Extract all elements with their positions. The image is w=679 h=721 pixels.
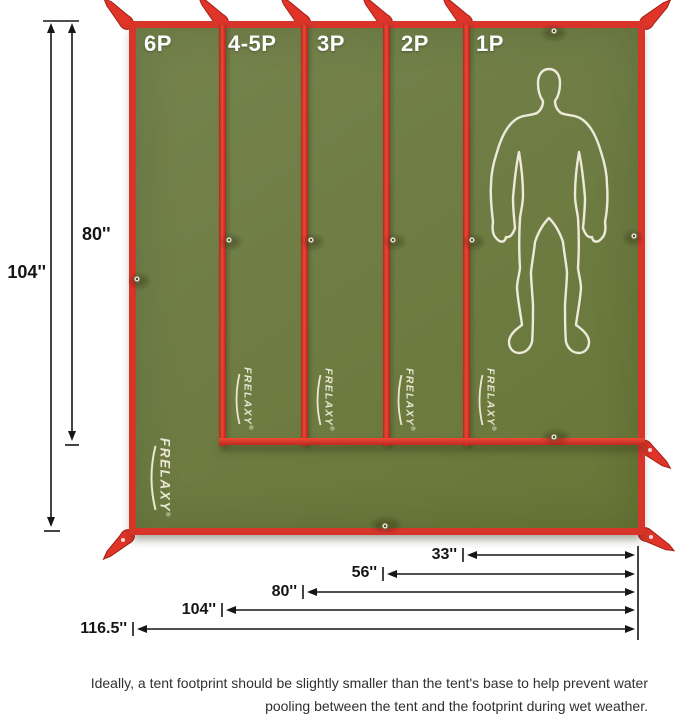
brand-swoosh-icon [235,372,241,426]
brand-name: FRELAXY [404,368,416,426]
registered-mark: ® [490,426,496,432]
brand-logo: FRELAXY® [316,368,335,432]
small-panels-bottom-seam [219,438,645,445]
dim-width-104: 104'' [136,601,216,619]
brand-swoosh-icon [150,444,157,512]
dim-height-80: 80'' [82,224,111,245]
panel-seam-2p [383,25,390,446]
product-diagram: 6P 4-5P 3P 2P 1P FRELAXY® FRELAXY® FRELA… [0,0,679,721]
brand-logo: FRELAXY® [478,368,497,432]
brand-swoosh-icon [316,373,322,427]
panel-seam-3p [301,25,308,446]
registered-mark: ® [328,426,334,432]
brand-name: FRELAXY [158,438,173,512]
panel-label-4-5p: 4-5P [228,31,276,57]
dim-width-116-5: 116.5'' [37,620,127,638]
brand-name: FRELAXY [485,368,497,426]
caption-line-2: pooling between the tent and the footpri… [20,695,648,718]
panel-label-6p: 6P [144,31,172,57]
brand-logo: FRELAXY® [397,368,416,432]
dim-width-80: 80'' [217,583,297,601]
registered-mark: ® [247,425,253,431]
panel-label-2p: 2P [401,31,429,57]
brand-name: FRELAXY [323,368,335,426]
registered-mark: ® [164,512,170,518]
brand-swoosh-icon [478,373,484,427]
panel-label-1p: 1P [476,31,504,57]
panel-seam-4-5p [219,25,226,446]
dim-width-33: 33'' [377,546,457,564]
panel-label-3p: 3P [317,31,345,57]
brand-logo: FRELAXY® [150,438,173,518]
dim-width-56: 56'' [297,564,377,582]
panel-seam-1p [463,25,470,446]
brand-name: FRELAXY [242,367,254,425]
registered-mark: ® [409,426,415,432]
caption: Ideally, a tent footprint should be slig… [20,672,648,718]
dim-height-104: 104'' [0,262,46,283]
brand-logo: FRELAXY® [235,367,254,431]
caption-line-1: Ideally, a tent footprint should be slig… [20,672,648,695]
brand-swoosh-icon [397,373,403,427]
